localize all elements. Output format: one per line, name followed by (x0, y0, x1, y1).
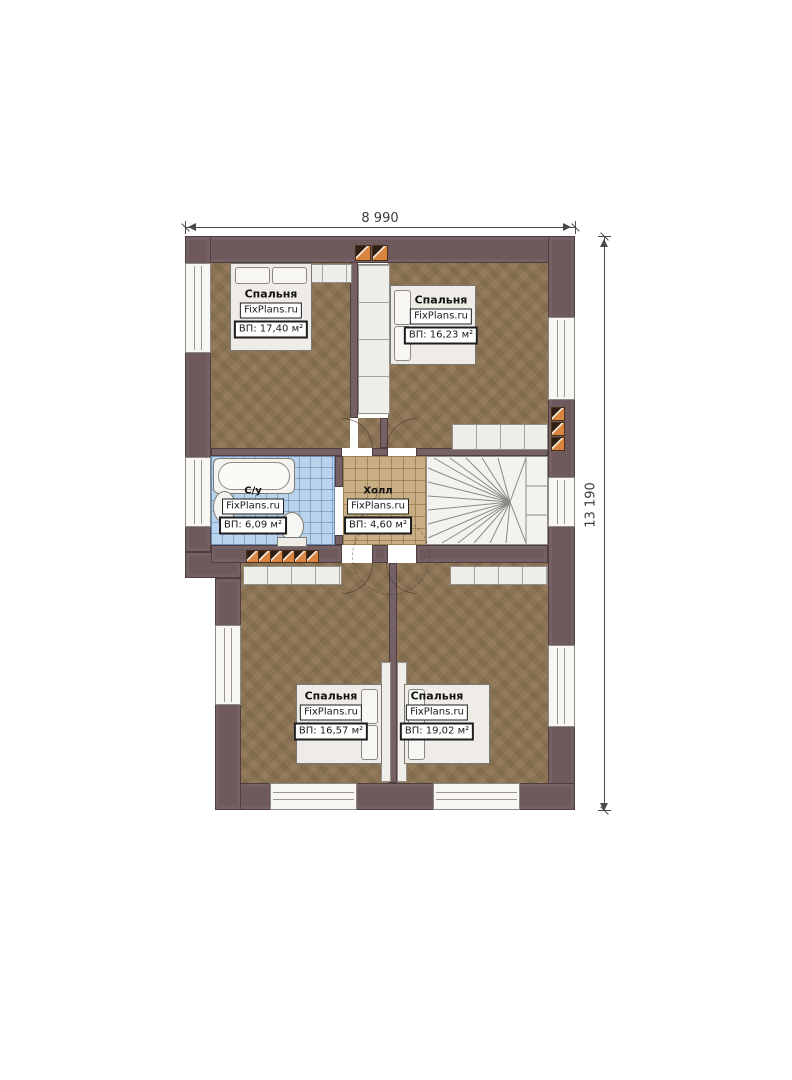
toilet-tank (277, 537, 307, 547)
area-label: ВП: 17,40 м² (234, 321, 308, 339)
room-name: Спальня (305, 690, 358, 703)
window-right-bottom-bedroom (548, 645, 575, 727)
window-bottom-right (433, 783, 520, 810)
room-name: Спальня (411, 690, 464, 703)
room-name: С/у (244, 486, 262, 497)
wall-mid-bottom-right (416, 545, 548, 563)
dimension-height-line (604, 236, 605, 810)
window-right-top-bedroom (548, 317, 575, 400)
room-label-bedroom-bottom-right: Спальня FixPlans.ru ВП: 19,02 м² (400, 690, 474, 741)
staircase (426, 456, 548, 545)
brand-label: FixPlans.ru (410, 309, 472, 325)
window-left-bathroom (185, 457, 211, 527)
chimney-flue-top-1 (355, 245, 371, 261)
dimension-arrow-down (600, 803, 608, 815)
wardrobe-bottom-left-room (243, 566, 342, 585)
brand-label: FixPlans.ru (406, 705, 468, 721)
chimney-flue-bath-6 (306, 550, 319, 563)
floor-plan-page: Спальня FixPlans.ru ВП: 17,40 м² Спальня… (0, 0, 792, 1080)
brand-label: FixPlans.ru (240, 303, 302, 319)
nightstand-left (381, 662, 391, 782)
wall-bath-top (211, 448, 342, 456)
dimension-arrow-left (184, 223, 196, 231)
room-label-bathroom: С/у FixPlans.ru ВП: 6,09 м² (219, 486, 287, 535)
window-left-bottom-bedroom (215, 625, 241, 705)
room-label-bedroom-top-right: Спальня FixPlans.ru ВП: 16,23 м² (404, 294, 478, 345)
area-label: ВП: 16,23 м² (404, 327, 478, 345)
chimney-flue-right-1 (551, 407, 565, 421)
room-name: Холл (363, 486, 392, 497)
room-label-bedroom-bottom-left: Спальня FixPlans.ru ВП: 16,57 м² (294, 690, 368, 741)
wardrobe-top-right-room (452, 424, 548, 450)
brand-label: FixPlans.ru (347, 499, 409, 515)
area-label: ВП: 6,09 м² (219, 517, 287, 535)
area-label: ВП: 4,60 м² (344, 517, 412, 535)
dimension-width-line (185, 227, 575, 228)
dimension-arrow-up (600, 235, 608, 247)
room-label-hall: Холл FixPlans.ru ВП: 4,60 м² (344, 486, 412, 535)
wardrobe-center-column (358, 264, 390, 414)
room-label-bedroom-top-left: Спальня FixPlans.ru ВП: 17,40 м² (234, 288, 308, 339)
brand-label: FixPlans.ru (300, 705, 362, 721)
wall-bath-hall-upper (335, 456, 343, 487)
pillow (272, 267, 307, 284)
dimension-height-label: 13 190 (584, 482, 599, 528)
chimney-flue-right-2 (551, 422, 565, 436)
area-label: ВП: 19,02 м² (400, 723, 474, 741)
wall-top-bedrooms-divider (350, 262, 358, 418)
wall-hall-top-stub (372, 448, 388, 456)
chimney-flue-right-3 (551, 437, 565, 451)
dimension-arrow-right (563, 223, 575, 231)
window-left-bedroom (185, 263, 211, 353)
wardrobe-bottom-right-room (450, 566, 548, 585)
wall-exterior-bottom (215, 783, 575, 810)
room-name: Спальня (245, 288, 298, 301)
brand-label: FixPlans.ru (222, 499, 284, 515)
area-label: ВП: 16,57 м² (294, 723, 368, 741)
wall-bath-hall-lower (335, 535, 343, 545)
window-bottom-left (270, 783, 357, 810)
chimney-flue-top-2 (372, 245, 388, 261)
pillow (235, 267, 270, 284)
room-name: Спальня (415, 294, 468, 307)
window-right-stairs (548, 477, 575, 527)
dimension-width-label: 8 990 (361, 211, 398, 226)
